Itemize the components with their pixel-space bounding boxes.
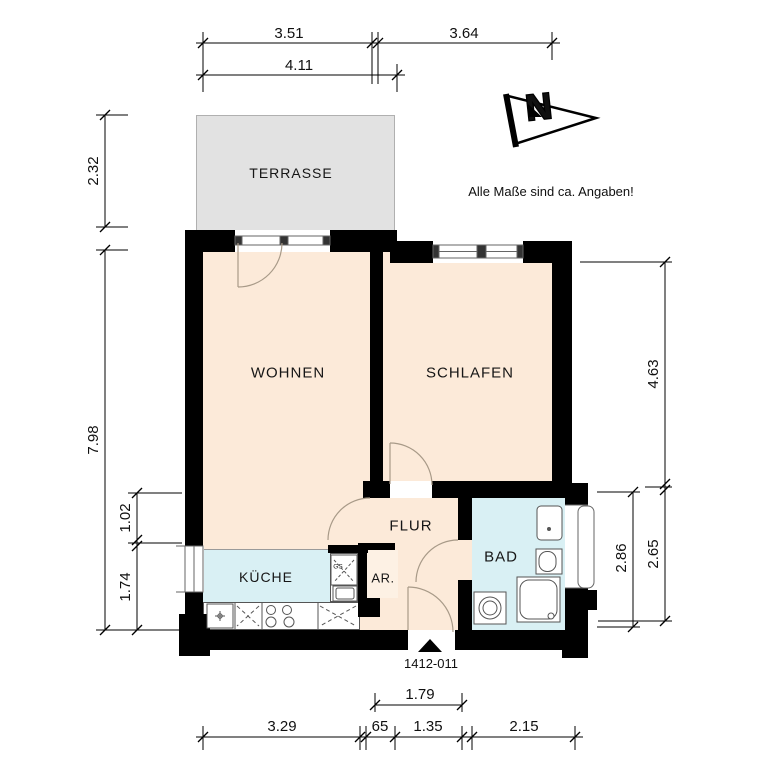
- dim-bottom-4: 1.35: [413, 718, 442, 735]
- dim-right-1: 4.63: [645, 359, 662, 388]
- dimension-lines: [96, 32, 672, 750]
- entrance-marker-icon: [418, 639, 442, 652]
- washing-machine-symbol: [474, 592, 506, 624]
- bad-window-symbol: [565, 505, 594, 588]
- toilet-symbol: [536, 549, 562, 574]
- kitchen-sink-symbol: [207, 604, 233, 628]
- dimension-ticks: [100, 38, 670, 742]
- dim-top-3: 4.11: [285, 57, 313, 74]
- dim-bottom-1: 1.79: [405, 686, 434, 703]
- room-label-gs: GS: [333, 564, 342, 571]
- kueche-door-swing: [328, 498, 370, 540]
- dim-right-2: 2.86: [613, 543, 630, 572]
- dim-bottom-3: 65: [372, 718, 389, 735]
- plan-overlay: N: [0, 0, 780, 775]
- shower-symbol: [517, 577, 560, 622]
- dim-top-2: 3.64: [449, 25, 478, 42]
- room-label-flur: FLUR: [389, 518, 432, 535]
- room-label-terrasse: TERRASSE: [249, 165, 332, 181]
- room-label-wohnen: WOHNEN: [251, 365, 325, 382]
- entrance-door-swing: [408, 587, 453, 632]
- schlafen-window-symbol: [433, 245, 523, 258]
- dishwasher-symbol: [331, 555, 357, 601]
- dim-left-1: 2.32: [85, 156, 102, 185]
- terrace-door-swing: [238, 243, 282, 287]
- disclaimer-text: Alle Maße sind ca. Angaben!: [468, 184, 634, 199]
- room-label-schlafen: SCHLAFEN: [426, 365, 514, 382]
- washbasin-symbol: [537, 506, 562, 540]
- schlafen-door-swing: [390, 443, 432, 485]
- dim-left-2: 7.98: [85, 425, 102, 454]
- kitchen-counter-symbol: [237, 606, 356, 626]
- kueche-window-symbol: [176, 546, 203, 592]
- dim-bottom-2: 3.29: [267, 718, 296, 735]
- bad-door-swing: [416, 540, 458, 582]
- dim-right-3: 2.65: [645, 539, 662, 568]
- room-label-kueche: KÜCHE: [239, 569, 293, 585]
- plan-number: 1412-011: [404, 656, 458, 671]
- dim-top-1: 3.51: [274, 25, 303, 42]
- floor-plan-canvas: N: [0, 0, 780, 775]
- room-label-abstellraum: AR.: [371, 571, 394, 586]
- room-label-bad: BAD: [484, 549, 518, 566]
- dim-left-3: 1.02: [117, 503, 134, 532]
- dim-left-4: 1.74: [117, 572, 134, 601]
- dim-bottom-5: 2.15: [509, 718, 538, 735]
- stove-symbol: [266, 606, 294, 628]
- north-arrow-icon: N: [506, 85, 596, 147]
